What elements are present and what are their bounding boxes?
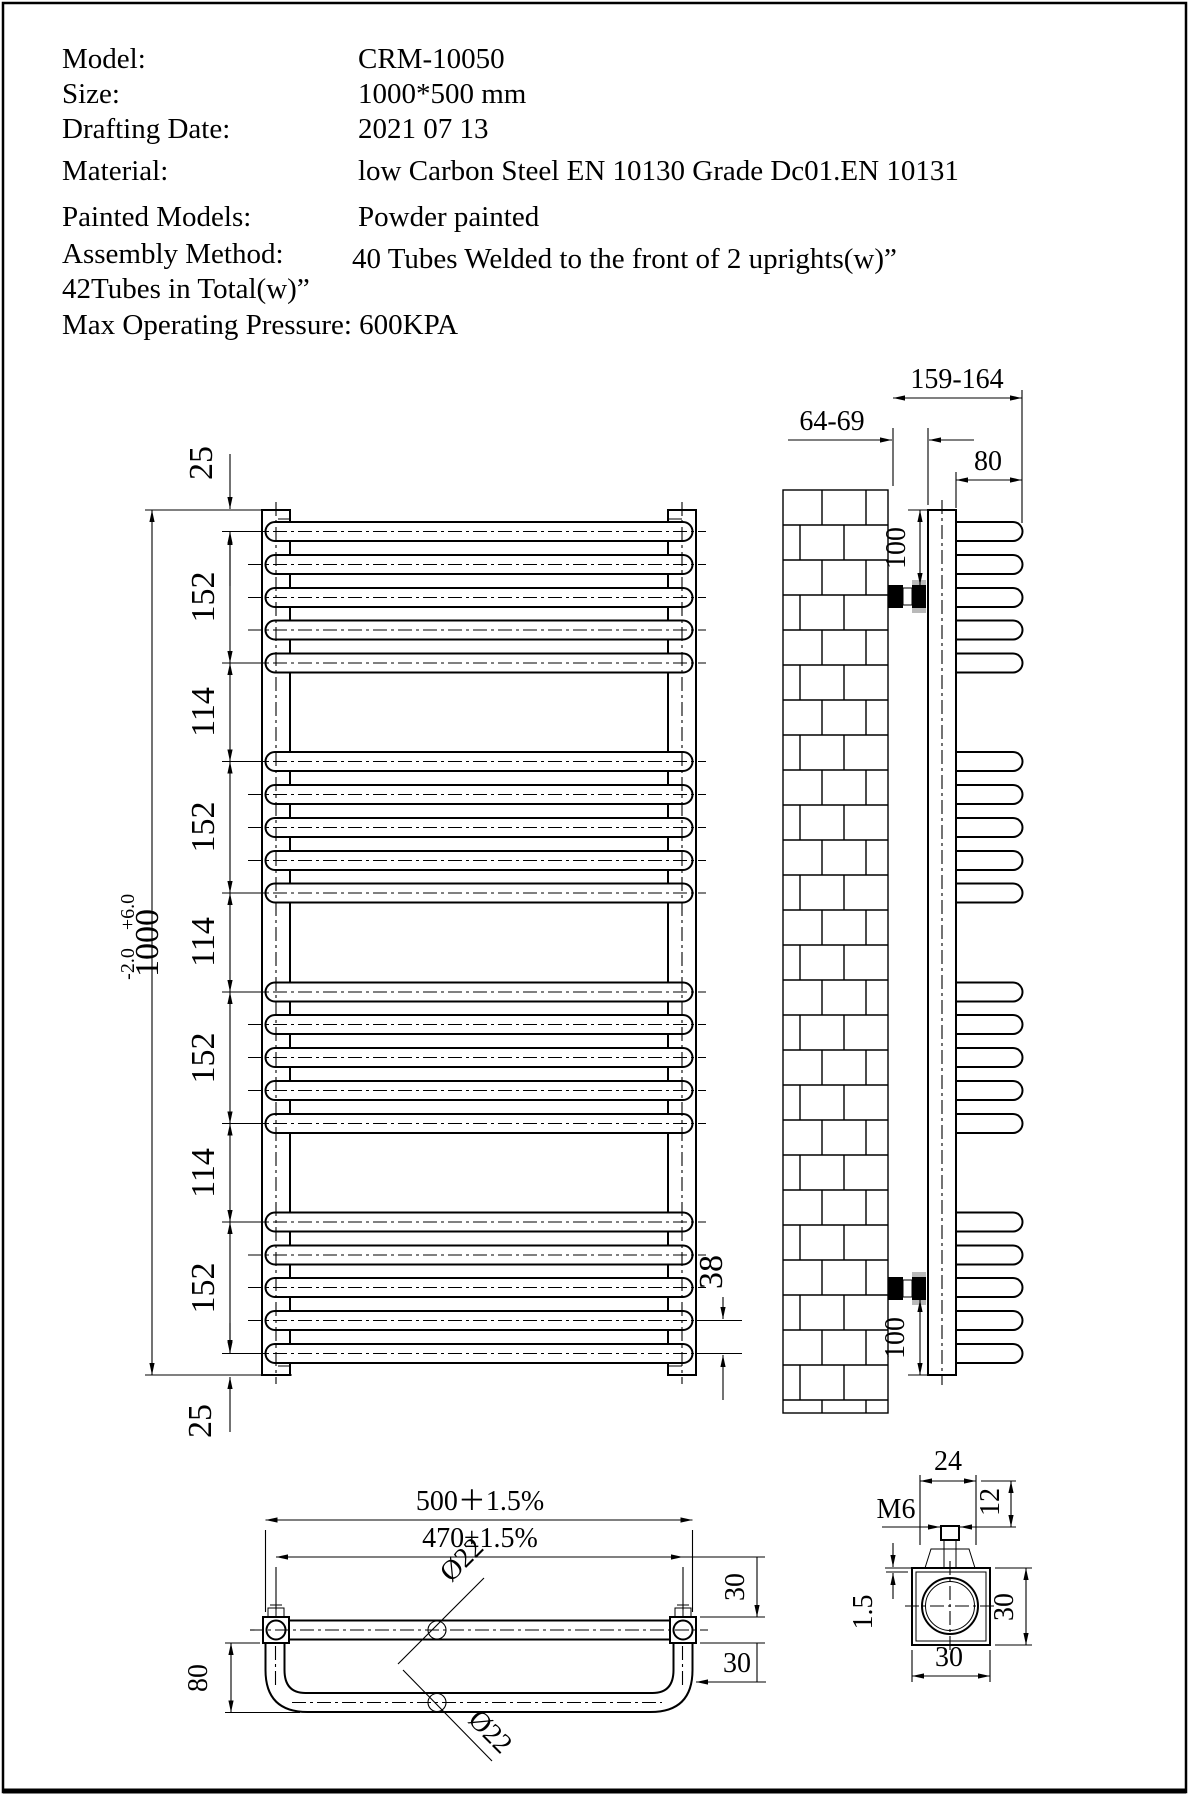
side-tube [956,621,1023,640]
dim-overall-depth: 159-164 [910,364,1003,395]
dim-bracket-height: 30 [989,1593,1020,1621]
dim-tube-length: 80 [974,446,1002,477]
side-tube [956,1311,1023,1330]
dim-loop-depth: 80 [183,1664,214,1692]
loop-outer-edge [266,1643,693,1712]
dim-chain-0: 25 [183,446,220,480]
side-tube [956,1081,1023,1100]
dim-bottom-bracket: 100 [880,1317,911,1359]
dim-wall-offset: 64-69 [799,406,864,437]
dim-edge-side: 30 [723,1648,751,1679]
side-tube-rows [956,522,1023,1363]
side-tube [956,983,1023,1002]
plan-view-drawing: 500＋1.5% 470±1.5% Ø22 Ø22 80 30 [183,1486,766,1761]
side-tube [956,752,1023,771]
side-tube [956,785,1023,804]
technical-drawing: Model: CRM-10050 Size: 1000*500 mm Draft… [0,0,1195,1800]
side-tube [956,1213,1023,1232]
side-tube [956,818,1023,837]
side-tube [956,1278,1023,1297]
material-value: low Carbon Steel EN 10130 Grade Dc01.EN … [358,155,959,187]
side-tube [956,1048,1023,1067]
dim-thread: M6 [877,1494,916,1525]
side-tube [956,1246,1023,1265]
dim-chain-3: 152 [185,802,222,853]
dim-overall-width: 500＋1.5% [416,1486,544,1517]
side-view-drawing: 159-164 64-69 80 100 100 [783,364,1023,1413]
side-tube [956,654,1023,673]
dim-bracket-width: 30 [935,1642,963,1673]
brick-wall [783,490,888,1413]
front-view-drawing: 1000 +6.0 -2.0 25 152 114 152 114 152 11… [117,446,742,1438]
side-tube [956,851,1023,870]
dim-chain-8: 25 [182,1404,219,1438]
side-tube [956,884,1023,903]
dim-chain-6: 114 [185,1148,222,1198]
dim-overall-tol-plus: +6.0 [117,894,139,930]
tubes-total-line: 42Tubes in Total(w)” [62,273,310,305]
size-label: Size: [62,78,120,110]
side-tube [956,555,1023,574]
date-value: 2021 07 13 [358,113,489,145]
loop-inner-edge [285,1643,674,1693]
assembly-label: Assembly Method: [62,238,284,270]
dim-chain-5: 152 [185,1033,222,1084]
front-tube-rows [248,522,706,1363]
dim-wall-thickness: 1.5 [848,1595,879,1630]
pressure-line: Max Operating Pressure: 600KPA [62,309,458,341]
dim-plate-width: 24 [934,1446,962,1477]
assembly-value: 40 Tubes Welded to the front of 2 uprigh… [352,243,897,275]
painted-label: Painted Models: [62,201,251,233]
dim-edge-top: 30 [720,1573,751,1601]
size-value: 1000*500 mm [358,78,527,110]
side-tube [956,1114,1023,1133]
dim-stud-height: 12 [975,1488,1006,1516]
wall-outline [783,490,888,1413]
side-tube [956,588,1023,607]
dim-tube-pitch: 38 [693,1255,730,1289]
side-tube [956,522,1023,541]
painted-value: Powder painted [358,201,540,233]
chain-extension-lines [222,532,267,1354]
drawing-page: Model: CRM-10050 Size: 1000*500 mm Draft… [0,0,1195,1800]
side-tube [956,1344,1023,1363]
m6-stud [941,1526,959,1540]
dim-chain-2: 114 [185,687,222,737]
dim-chain-7: 152 [185,1263,222,1314]
side-tube [956,1015,1023,1034]
dim-chain-1: 152 [185,572,222,623]
detail-dimensions: 24 12 M6 1.5 30 30 [848,1446,1032,1682]
date-label: Drafting Date: [62,113,230,145]
model-value: CRM-10050 [358,43,505,75]
dim-overall-tol-minus: -2.0 [117,948,139,980]
material-label: Material: [62,155,168,187]
dim-chain-4: 114 [185,917,222,967]
title-block: Model: CRM-10050 Size: 1000*500 mm Draft… [62,43,959,341]
dim-top-bracket: 100 [881,527,912,569]
model-label: Model: [62,43,146,75]
bracket-detail-drawing: 24 12 M6 1.5 30 30 [848,1446,1032,1682]
